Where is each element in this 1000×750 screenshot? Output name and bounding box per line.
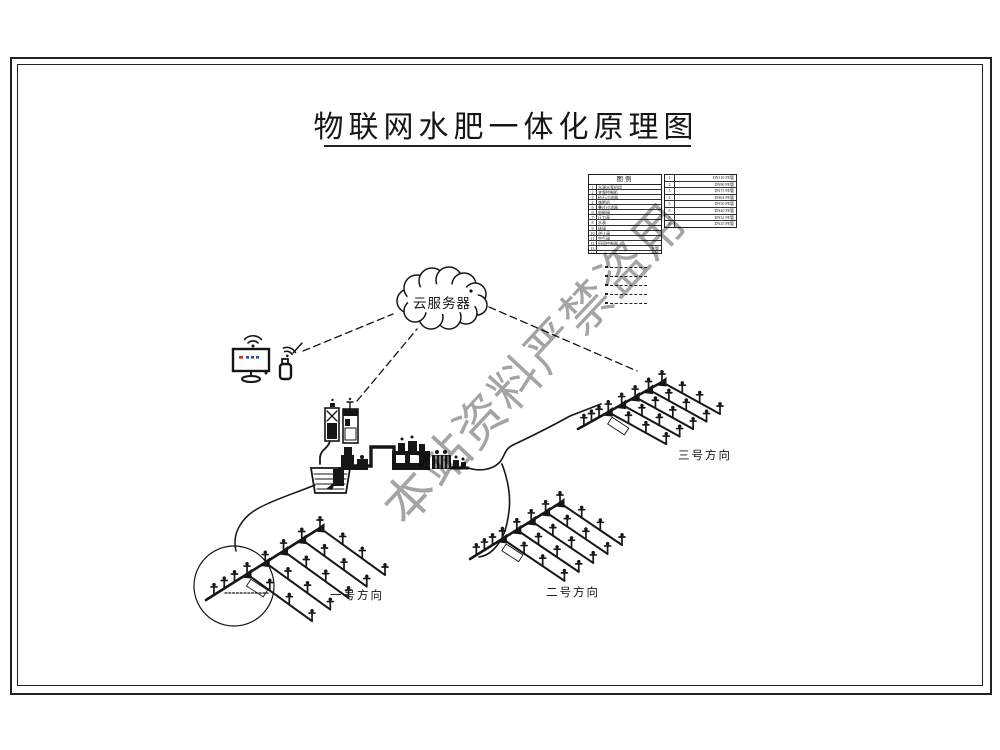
legend-table-main: 图例 1水源水泵机组2变频控制柜3砂石过滤器4施肥机5叠片过滤器6电磁阀7压力表…: [588, 174, 662, 254]
fertilizer-tank-icon: [325, 399, 339, 441]
legend-row-number: 7: [665, 215, 675, 221]
legend-row-label: 水表: [597, 220, 661, 224]
legend-row-label: 空气阀: [597, 236, 661, 240]
legend-row-label: 田间控制器: [597, 241, 661, 245]
drawing-sheet: 物联网水肥一体化原理图: [0, 0, 1000, 750]
legend-row-label: 叠片过滤器: [597, 205, 661, 209]
field-2-label: 二号方向: [546, 584, 600, 600]
field-3-label: 三号方向: [678, 447, 732, 463]
legend-row-label: 压力表: [597, 215, 661, 219]
legend-row-label: 逆止阀: [597, 231, 661, 235]
fertigation-machine-icon: [392, 436, 430, 471]
main-distribution-pipes: [235, 404, 601, 557]
legend-title: 图例: [589, 175, 661, 185]
legend-row-label: 施肥机: [597, 200, 661, 204]
legend-row-number: 10: [589, 231, 597, 235]
legend-row: 14支管: [589, 251, 661, 254]
legend-row-label: DN90 PE管: [675, 182, 736, 188]
legend-row-number: 2: [665, 182, 675, 188]
monitor-wifi-icon: [233, 336, 269, 382]
legend-row-number: 1: [665, 175, 675, 181]
wifi-icon: [245, 336, 262, 348]
legend-row-number: 11: [589, 236, 597, 240]
dashed-line-sample: [605, 299, 647, 308]
legend-row-number: 13: [589, 246, 597, 250]
legend-table-pipes: 1DN110 PE管2DN90 PE管3DN75 PE管4DN63 PE管5DN…: [664, 174, 737, 228]
legend-row-number: 8: [665, 221, 675, 227]
field-grid-1: [206, 516, 388, 621]
legend-row-number: 6: [665, 208, 675, 214]
legend-row-label: 球阀: [597, 226, 661, 230]
legend-row-label: DN50 PE管: [675, 201, 736, 207]
legend-row-label: DN63 PE管: [675, 195, 736, 201]
legend-row-number: 7: [589, 215, 597, 219]
legend-row-label: 砂石过滤器: [597, 195, 661, 199]
legend-row-number: 14: [589, 251, 597, 254]
legend-row-label: DN75 PE管: [675, 188, 736, 194]
legend-row: 2DN90 PE管: [665, 182, 736, 189]
legend-row-number: 5: [665, 201, 675, 207]
dashed-line-sample: [605, 272, 647, 281]
legend-row: 7DN32 PE管: [665, 215, 736, 222]
legend-row: 5DN50 PE管: [665, 201, 736, 208]
legend-row-label: 支管: [597, 251, 661, 254]
dashed-line-sample: [605, 281, 647, 290]
fertilizer-tank-antenna-icon: [343, 398, 358, 443]
legend-row-label: DN110 PE管: [675, 175, 736, 181]
field-1-label: 一号方向: [330, 587, 384, 603]
legend-row: 6DN40 PE管: [665, 208, 736, 215]
legend-row: 3DN75 PE管: [665, 188, 736, 195]
legend-row-number: 5: [589, 205, 597, 209]
legend-row: 1DN110 PE管: [665, 175, 736, 182]
legend-row-label: 水源水泵机组: [597, 185, 661, 189]
legend-row-label: DN32 PE管: [675, 215, 736, 221]
field-tag: [608, 417, 629, 435]
legend-row-number: 1: [589, 185, 597, 189]
head-pipe: [350, 447, 394, 466]
legend-row-number: 2: [589, 190, 597, 194]
legend-row: 8DN25 PE管: [665, 221, 736, 228]
legend-row-label: 变频控制柜: [597, 190, 661, 194]
legend-row-number: 9: [589, 226, 597, 230]
legend-row-number: 4: [665, 195, 675, 201]
legend-row-number: 4: [589, 200, 597, 204]
filter-block-icon: [432, 450, 451, 469]
diagram-canvas: [0, 0, 1000, 750]
legend-row-number: 3: [665, 188, 675, 194]
handheld-wifi-icon: [280, 343, 302, 379]
legend-row-label: 电磁阀: [597, 210, 661, 214]
legend-row: 4DN63 PE管: [665, 195, 736, 202]
legend-row-label: DN40 PE管: [675, 208, 736, 214]
field-grid-2: [470, 491, 625, 580]
cloud-server-label: 云服务器: [404, 292, 480, 312]
legend-row-number: 8: [589, 220, 597, 224]
dashed-line-sample: [605, 263, 647, 272]
legend-row-number: 3: [589, 195, 597, 199]
legend-row-number: 6: [589, 210, 597, 214]
legend-linetype-samples: [605, 263, 647, 307]
field-grid-3: [578, 370, 723, 444]
legend-row-label: 主管: [597, 246, 661, 250]
legend-row-label: DN25 PE管: [675, 221, 736, 227]
equipment-cluster: [311, 398, 468, 493]
dashed-line-sample: [605, 290, 647, 299]
legend-row-number: 12: [589, 241, 597, 245]
